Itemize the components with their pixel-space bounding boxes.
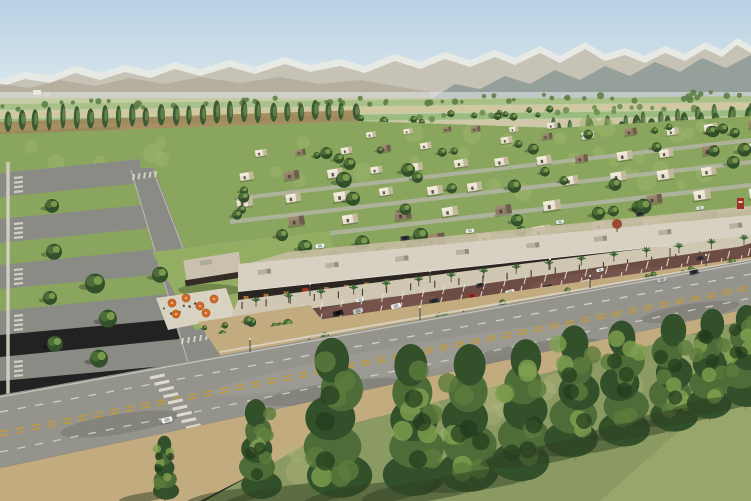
- foreground-tree-foliage: [260, 429, 273, 442]
- scatter-dot: [709, 90, 713, 94]
- aerial-development-rendering: [0, 0, 751, 501]
- scatter-dot: [383, 101, 388, 106]
- tree-highlight: [243, 187, 247, 191]
- scatter-dot: [597, 92, 604, 99]
- scatter-dot: [188, 305, 191, 308]
- scatter-dot: [542, 93, 546, 97]
- monument-sign: [737, 198, 744, 209]
- scatter-dot: [612, 106, 616, 110]
- foreground-tree-foliage: [563, 384, 579, 400]
- palm-crown: [678, 246, 680, 248]
- foreground-tree-foliage: [668, 390, 682, 404]
- rooftop-unit-shade: [334, 262, 339, 267]
- scatter-dot: [637, 104, 643, 110]
- tree-highlight: [654, 128, 657, 131]
- tree-highlight: [513, 181, 519, 187]
- rooftop-unit-shade: [465, 249, 470, 254]
- car-roof: [403, 236, 408, 239]
- foreground-tree-foliage: [619, 367, 634, 382]
- foreground-tree-foliage: [729, 324, 741, 336]
- poplar-highlight: [355, 106, 359, 115]
- foreground-tree-foliage: [460, 420, 478, 438]
- monument-sign: [737, 198, 744, 209]
- stripe: [14, 177, 23, 178]
- scatter-dot: [367, 102, 372, 107]
- foreground-tree-foliage: [155, 452, 163, 460]
- umbrella-pole-top: [213, 298, 215, 300]
- umbrella-pole-top: [199, 305, 201, 307]
- stripe: [14, 324, 23, 325]
- tree-highlight: [549, 106, 552, 109]
- foreground-tree-foliage: [668, 359, 682, 373]
- palm-crown: [515, 267, 517, 269]
- poplar-highlight: [243, 104, 247, 116]
- stripe: [14, 375, 23, 376]
- stripe: [14, 232, 23, 233]
- foreground-tree-foliage: [320, 386, 339, 405]
- tree-highlight: [54, 338, 61, 345]
- scatter-dot: [506, 98, 512, 104]
- scatter-dot: [183, 305, 185, 307]
- poplar-highlight: [160, 108, 164, 120]
- stripe: [188, 337, 189, 343]
- scatter-dot: [723, 92, 730, 99]
- tree-highlight: [224, 323, 227, 326]
- poplar-highlight: [7, 115, 11, 127]
- palm-crown: [385, 283, 387, 285]
- scatter-dot: [457, 146, 470, 159]
- scatter-dot: [565, 95, 571, 101]
- tree-highlight: [743, 145, 749, 151]
- tree-highlight: [51, 201, 57, 207]
- tree-highlight: [451, 185, 456, 190]
- poplar-highlight: [229, 105, 232, 118]
- tree-highlight: [529, 108, 532, 111]
- tree-highlight: [405, 205, 410, 210]
- light-pole-head: [429, 270, 431, 272]
- foreground-tree-foliage: [607, 354, 622, 369]
- poplar-highlight: [104, 109, 107, 122]
- palm-crown: [320, 292, 322, 294]
- stripe: [14, 278, 23, 279]
- red-ornamental-tree: [612, 219, 622, 229]
- tree-highlight: [732, 158, 738, 164]
- farm-shed-1: [33, 90, 41, 95]
- tree-highlight: [713, 147, 718, 152]
- stripe: [14, 269, 23, 270]
- poplar-highlight: [76, 110, 79, 123]
- scene-root: [0, 38, 751, 501]
- palm-crown: [287, 296, 289, 298]
- tree-highlight: [614, 180, 620, 186]
- foreground-tree-canopy: [454, 344, 486, 385]
- tree-highlight: [419, 230, 426, 237]
- poplar-highlight: [21, 113, 25, 124]
- tree-highlight: [98, 352, 106, 360]
- scatter-dot: [107, 99, 111, 103]
- foreground-tree-foliage: [413, 413, 431, 431]
- palm-crown: [483, 271, 485, 273]
- tree-highlight: [247, 317, 251, 321]
- car-roof: [638, 212, 642, 215]
- tree-highlight: [204, 326, 206, 328]
- scatter-dot: [89, 99, 93, 103]
- stripe: [14, 223, 23, 224]
- stripe: [14, 361, 23, 362]
- tree-highlight: [413, 117, 416, 120]
- foreground-tree-foliage: [525, 416, 542, 433]
- tree-highlight: [734, 129, 739, 134]
- foreground-tree-foliage: [330, 466, 351, 487]
- stripe: [144, 173, 145, 179]
- stripe: [14, 370, 23, 371]
- foreground-tree-foliage: [631, 344, 648, 361]
- scatter-dot: [555, 109, 561, 115]
- stripe: [150, 172, 151, 178]
- light-pole-head: [309, 283, 311, 285]
- scatter-dot: [273, 96, 278, 101]
- scatter-dot: [143, 144, 162, 163]
- tree-highlight: [53, 246, 60, 253]
- poplar-highlight: [131, 108, 134, 121]
- foreground-tree-foliage: [153, 445, 161, 453]
- tree-highlight: [94, 276, 103, 285]
- poplar-highlight: [257, 104, 260, 117]
- stripe: [133, 174, 134, 180]
- tree-highlight: [669, 124, 672, 127]
- tree-highlight: [563, 177, 567, 181]
- farm-shed-1: [33, 90, 41, 95]
- stripe: [14, 186, 23, 187]
- tree-highlight: [656, 143, 661, 148]
- tree-highlight: [518, 141, 522, 145]
- poplar-highlight: [273, 106, 277, 117]
- scatter-dot: [452, 98, 458, 104]
- scatter-dot: [685, 93, 692, 100]
- stripe: [200, 335, 201, 341]
- palm-crown: [450, 275, 452, 277]
- poplar-highlight: [48, 111, 51, 124]
- foreground-tree-foliage: [405, 389, 423, 407]
- rooftop-unit-shade: [738, 222, 743, 227]
- palm-crown: [352, 287, 354, 289]
- tree-highlight: [281, 231, 286, 236]
- tree-highlight: [361, 237, 367, 243]
- scatter-dot: [0, 104, 4, 108]
- tree-highlight: [505, 112, 508, 115]
- tree-highlight: [613, 207, 618, 212]
- foreground-tree-foliage: [666, 377, 682, 393]
- tree-highlight: [360, 116, 363, 119]
- car-roof: [468, 229, 472, 232]
- rooftop-unit-shade: [535, 242, 540, 247]
- tree-highlight: [380, 148, 383, 151]
- stripe: [14, 315, 23, 316]
- foreground-tree-foliage: [245, 447, 257, 459]
- stripe: [14, 283, 23, 284]
- foreground-tree-foliage: [702, 368, 717, 383]
- foreground-tree-foliage: [726, 364, 739, 377]
- rooftop-unit-shade: [667, 229, 672, 234]
- palm-crown: [580, 258, 582, 260]
- scatter-dot: [429, 116, 435, 122]
- foreground-tree-foliage: [393, 421, 413, 441]
- tree-highlight: [236, 211, 240, 215]
- car-roof: [558, 220, 562, 223]
- rooftop-unit-shade: [267, 268, 272, 273]
- foreground-tree-foliage: [155, 464, 163, 472]
- light-pole-head: [249, 338, 251, 340]
- stripe: [139, 173, 140, 179]
- scatter-dot: [358, 96, 363, 101]
- poplar-highlight: [175, 108, 179, 120]
- poplar-highlight: [188, 109, 191, 120]
- scatter-dot: [297, 136, 310, 149]
- scatter-dot: [16, 107, 21, 112]
- scatter-dot: [617, 104, 623, 110]
- light-pole-head: [419, 306, 421, 308]
- foreground-tree-foliage: [167, 453, 175, 461]
- foreground-tree-foliage: [608, 330, 625, 347]
- foreground-tree-foliage: [729, 346, 741, 358]
- tree-highlight: [338, 155, 343, 160]
- foreground-tree-foliage: [654, 350, 668, 364]
- tree-highlight: [349, 159, 354, 164]
- foreground-tree-foliage: [706, 354, 719, 367]
- scatter-dot: [610, 97, 614, 101]
- scatter-dot: [582, 96, 587, 101]
- foreground-tree-foliage: [315, 351, 336, 372]
- scatter-dot: [549, 96, 554, 101]
- stripe: [14, 320, 23, 321]
- umbrella-pole-top: [175, 313, 177, 315]
- scatter-dot: [163, 307, 165, 309]
- stripe: [14, 182, 23, 183]
- scatter-dot: [71, 101, 75, 105]
- scatter-dot: [554, 132, 566, 144]
- tree-highlight: [450, 111, 453, 114]
- tree-highlight: [513, 114, 516, 117]
- tree-highlight: [587, 131, 591, 135]
- palm-crown: [255, 300, 257, 302]
- tree-highlight: [538, 113, 540, 115]
- scatter-dot: [41, 101, 48, 108]
- stripe: [155, 171, 156, 177]
- foreground-tree-foliage: [438, 373, 458, 393]
- scatter-dot: [491, 93, 496, 98]
- foreground-tree-foliage: [697, 330, 710, 343]
- tree-highlight: [343, 174, 350, 181]
- palm-crown: [743, 238, 745, 240]
- foreground-tree-foliage: [584, 346, 601, 363]
- tree-highlight: [304, 242, 310, 248]
- stripe: [14, 228, 23, 229]
- farm-shed-2: [44, 92, 50, 96]
- poplar-highlight: [660, 114, 663, 123]
- tree-highlight: [107, 312, 115, 320]
- scatter-dot: [512, 98, 516, 102]
- foreground-tree-foliage: [561, 367, 577, 383]
- light-pole-head: [589, 275, 591, 277]
- foreground-tree-foliage: [251, 468, 263, 480]
- scatter-dot: [661, 107, 666, 112]
- foreground-tree-foliage: [454, 386, 474, 406]
- tree-highlight: [516, 216, 522, 222]
- scatter-dot: [677, 180, 686, 189]
- storefront-sign-red-1: [302, 288, 308, 292]
- scatter-dot: [460, 100, 464, 104]
- scatter-dot: [597, 118, 616, 137]
- poplar-highlight: [202, 108, 206, 119]
- tree-highlight: [532, 145, 537, 150]
- foreground-tree-foliage: [316, 412, 335, 431]
- tree-highlight: [421, 120, 424, 123]
- foreground-tree-foliage: [617, 382, 632, 397]
- tree-highlight: [243, 193, 248, 198]
- tree-highlight: [383, 118, 387, 122]
- scatter-dot: [563, 107, 570, 114]
- stripe: [14, 274, 23, 275]
- light-pole-head: [669, 246, 671, 248]
- foreground-tree-foliage: [409, 450, 427, 468]
- stripe: [14, 329, 23, 330]
- tree-highlight: [454, 148, 457, 151]
- scatter-dot: [482, 94, 486, 98]
- umbrella-pole-top: [171, 302, 173, 304]
- rendering-canvas: [0, 0, 751, 501]
- scatter-dot: [737, 93, 742, 98]
- scatter-dot: [289, 445, 306, 462]
- scatter-dot: [594, 109, 600, 115]
- tree-highlight: [49, 293, 55, 299]
- foreground-tree-foliage: [263, 407, 276, 420]
- tree-highlight: [352, 193, 358, 199]
- tree-highlight: [159, 269, 166, 276]
- foreground-tree-foliage: [528, 380, 547, 399]
- tree-highlight: [499, 110, 501, 112]
- poplar-highlight: [340, 105, 343, 115]
- scatter-dot: [441, 113, 446, 118]
- tree-highlight: [417, 174, 422, 179]
- rooftop-unit-shade: [602, 236, 607, 241]
- scatter-dot: [95, 98, 101, 104]
- tree-highlight: [722, 125, 727, 130]
- foreground-tree-foliage: [689, 348, 704, 363]
- tree-highlight: [732, 259, 735, 262]
- farm-shed-2: [44, 92, 50, 96]
- tree-highlight: [241, 206, 245, 210]
- palm-crown: [710, 242, 712, 244]
- tree-highlight: [597, 208, 603, 214]
- poplar-highlight: [300, 107, 303, 117]
- poplar-highlight: [145, 111, 148, 122]
- palm-crown: [645, 250, 647, 252]
- scatter-dot: [629, 105, 633, 109]
- car-roof: [318, 244, 323, 247]
- foreground-tree-foliage: [549, 335, 566, 352]
- stripe: [182, 338, 183, 344]
- foreground-tree-foliage: [576, 413, 592, 429]
- foreground-tree-foliage: [495, 385, 514, 404]
- foreground-tree-foliage: [316, 451, 335, 470]
- light-pole-head: [705, 254, 707, 256]
- scatter-dot: [650, 106, 654, 110]
- stripe: [14, 191, 23, 192]
- tree-highlight: [325, 149, 330, 154]
- storefront-sign-red-1: [302, 288, 308, 292]
- rooftop-unit-shade: [404, 255, 409, 260]
- foreground-tree-foliage: [163, 473, 171, 481]
- poplar-highlight: [314, 103, 318, 114]
- scatter-dot: [24, 140, 38, 154]
- poplar-highlight: [118, 109, 121, 122]
- light-pole-head: [549, 258, 551, 260]
- monument-sign-face: [739, 201, 743, 203]
- tree-highlight: [544, 168, 548, 172]
- poplar-highlight: [677, 111, 680, 120]
- poplar-highlight: [62, 108, 65, 122]
- stripe: [14, 366, 23, 367]
- stripe: [14, 237, 23, 238]
- poplar-highlight: [328, 105, 331, 115]
- tree-highlight: [474, 113, 477, 116]
- scatter-dot: [698, 91, 704, 97]
- scatter-dot: [479, 110, 485, 116]
- scatter-dot: [353, 162, 372, 181]
- scatter-dot: [441, 100, 445, 104]
- foreground-tree-foliage: [409, 360, 429, 380]
- monument-sign-face: [739, 201, 743, 203]
- poplar-highlight: [34, 113, 38, 125]
- scatter-dot: [592, 105, 597, 110]
- poplar-highlight: [216, 104, 220, 117]
- tree-highlight: [407, 165, 413, 171]
- poplar-highlight: [287, 106, 290, 117]
- foreground-tree-foliage: [158, 480, 166, 488]
- tree-highlight: [441, 149, 445, 153]
- scatter-dot: [424, 100, 431, 107]
- tree-highlight: [653, 272, 656, 275]
- scatter-dot: [270, 166, 281, 177]
- foreground-tree-foliage: [518, 360, 537, 379]
- tree-highlight: [643, 201, 650, 208]
- palm-crown: [417, 279, 419, 281]
- stripe: [194, 336, 195, 342]
- palm-crown: [613, 254, 615, 256]
- car-roof: [698, 207, 702, 210]
- umbrella-pole-top: [185, 297, 187, 299]
- scatter-dot: [631, 98, 637, 104]
- poplar-highlight: [90, 112, 94, 123]
- scatter-dot: [135, 100, 142, 107]
- umbrella-pole-top: [205, 312, 207, 314]
